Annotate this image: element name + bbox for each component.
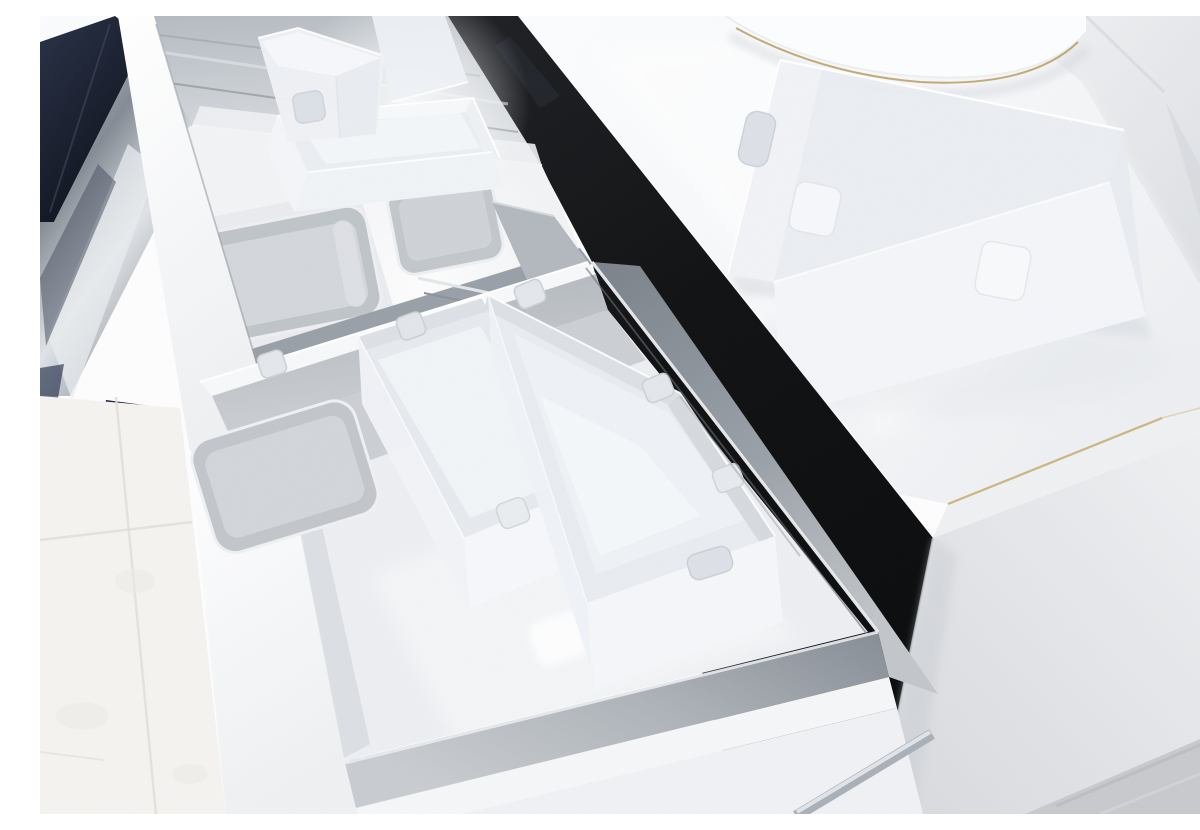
- vanity-drawers-photo: Open white bathroom vanity drawers seen …: [40, 16, 1200, 814]
- photo-grain-overlay: [40, 16, 1200, 814]
- photo-recreation: Open white bathroom vanity drawers seen …: [40, 16, 1200, 814]
